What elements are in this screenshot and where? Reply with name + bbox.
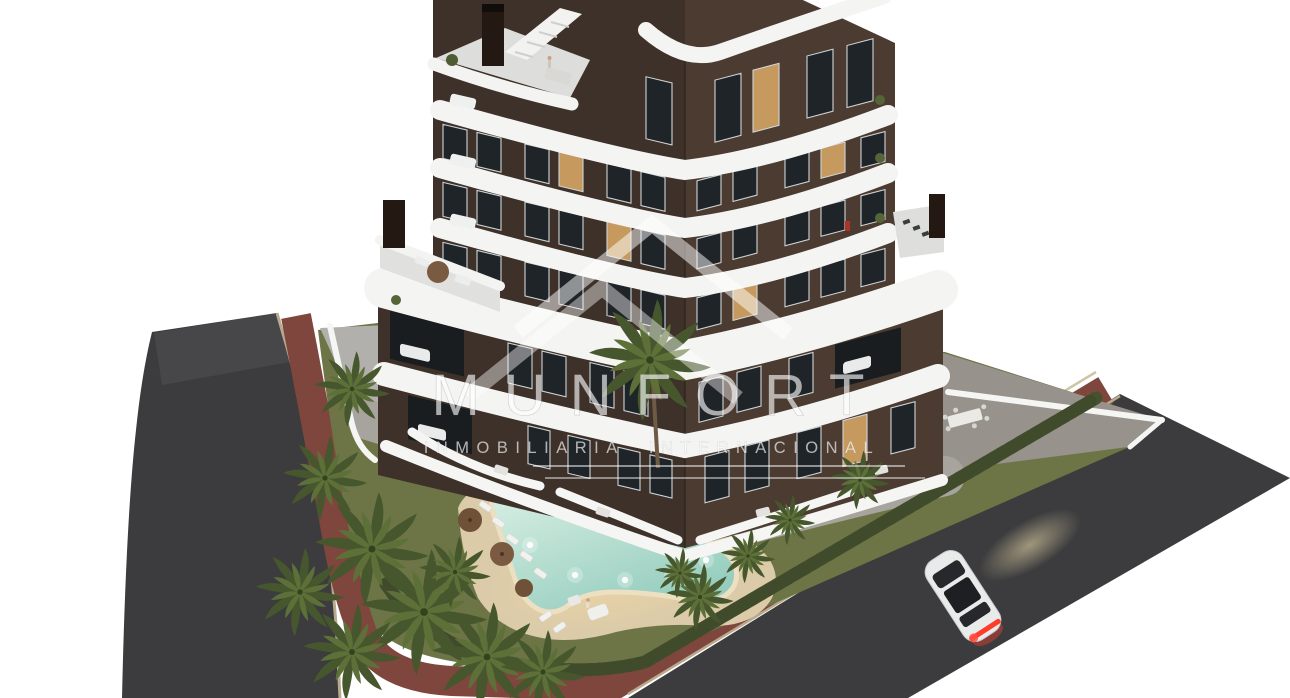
watermark-brand-text: MUNFORT	[432, 363, 889, 428]
render-canvas: MUNFORT INMOBILIARIA INTERNACIONAL	[0, 0, 1290, 698]
right-wing-roof	[893, 194, 945, 258]
watermark-tagline-text: INMOBILIARIA INTERNACIONAL	[424, 439, 880, 457]
chimney	[482, 4, 504, 66]
architectural-render: MUNFORT INMOBILIARIA INTERNACIONAL	[0, 0, 1290, 698]
